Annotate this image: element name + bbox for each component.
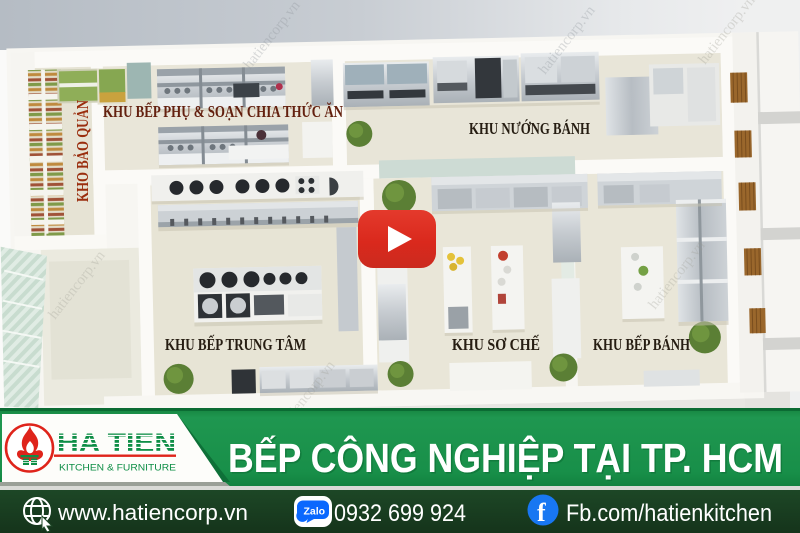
svg-text:KHU BẾP BÁNH: KHU BẾP BÁNH bbox=[593, 335, 690, 354]
svg-text:Zalo: Zalo bbox=[304, 506, 326, 518]
svg-text:KHU SƠ CHẾ: KHU SƠ CHẾ bbox=[452, 335, 540, 354]
svg-text:BẾP CÔNG NGHIỆP TẠI TP. HCM: BẾP CÔNG NGHIỆP TẠI TP. HCM bbox=[228, 435, 783, 481]
svg-text:HA TIEN: HA TIEN bbox=[57, 428, 176, 458]
svg-text:KHU BẾP TRUNG TÂM: KHU BẾP TRUNG TÂM bbox=[165, 335, 306, 354]
svg-text:KHO BẢO QUẢN: KHO BẢO QUẢN bbox=[73, 99, 92, 202]
svg-text:KHU BẾP PHỤ & SOẠN CHIA THỨC Ă: KHU BẾP PHỤ & SOẠN CHIA THỨC ĂN bbox=[103, 102, 344, 121]
svg-text:0932 699 924: 0932 699 924 bbox=[334, 500, 466, 527]
svg-text:f: f bbox=[537, 498, 546, 527]
svg-text:KITCHEN & FURNITURE: KITCHEN & FURNITURE bbox=[59, 463, 176, 473]
svg-text:www.hatiencorp.vn: www.hatiencorp.vn bbox=[57, 500, 248, 525]
svg-text:KHU NƯỚNG BÁNH: KHU NƯỚNG BÁNH bbox=[469, 119, 590, 138]
svg-text:Fb.com/hatienkitchen: Fb.com/hatienkitchen bbox=[566, 500, 772, 527]
